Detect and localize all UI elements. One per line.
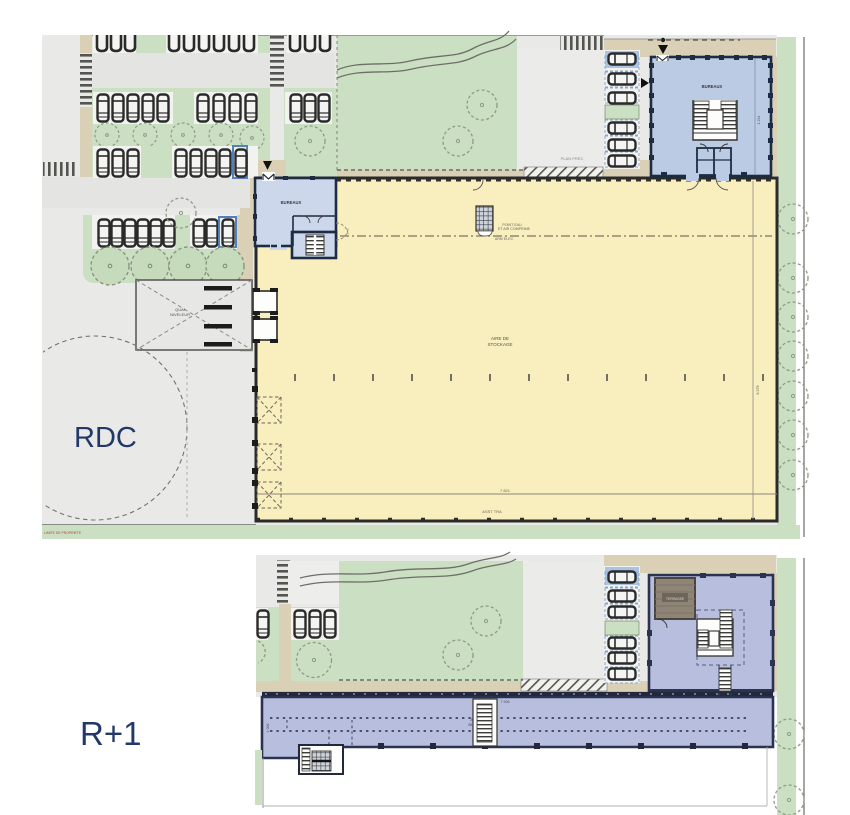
svg-text:RDC: RDC: [74, 422, 137, 454]
svg-text:LIMITE DE PROPRIETE: LIMITE DE PROPRIETE: [44, 531, 82, 535]
svg-text:BUREAUX: BUREAUX: [281, 200, 302, 205]
svg-text:R+1: R+1: [80, 715, 141, 752]
svg-text:BUREAUX: BUREAUX: [702, 84, 723, 89]
svg-text:1 234: 1 234: [757, 116, 761, 125]
svg-text:PLAN PREC: PLAN PREC: [561, 156, 584, 161]
svg-text:ET AIR COMPRIME: ET AIR COMPRIME: [498, 227, 531, 231]
svg-text:4 008: 4 008: [266, 724, 270, 733]
svg-text:STOCKAGE: STOCKAGE: [488, 342, 513, 347]
svg-text:NIVELEUR: NIVELEUR: [170, 312, 190, 317]
svg-text:AIRE DE: AIRE DE: [491, 336, 509, 341]
svg-text:7 821: 7 821: [500, 488, 511, 493]
svg-text:TERRASSE: TERRASSE: [666, 597, 685, 601]
svg-text:ARM ELEC: ARM ELEC: [495, 237, 514, 241]
svg-text:6 379: 6 379: [756, 386, 760, 395]
svg-text:7 908: 7 908: [501, 700, 510, 704]
svg-text:ASST TRA: ASST TRA: [482, 509, 502, 514]
